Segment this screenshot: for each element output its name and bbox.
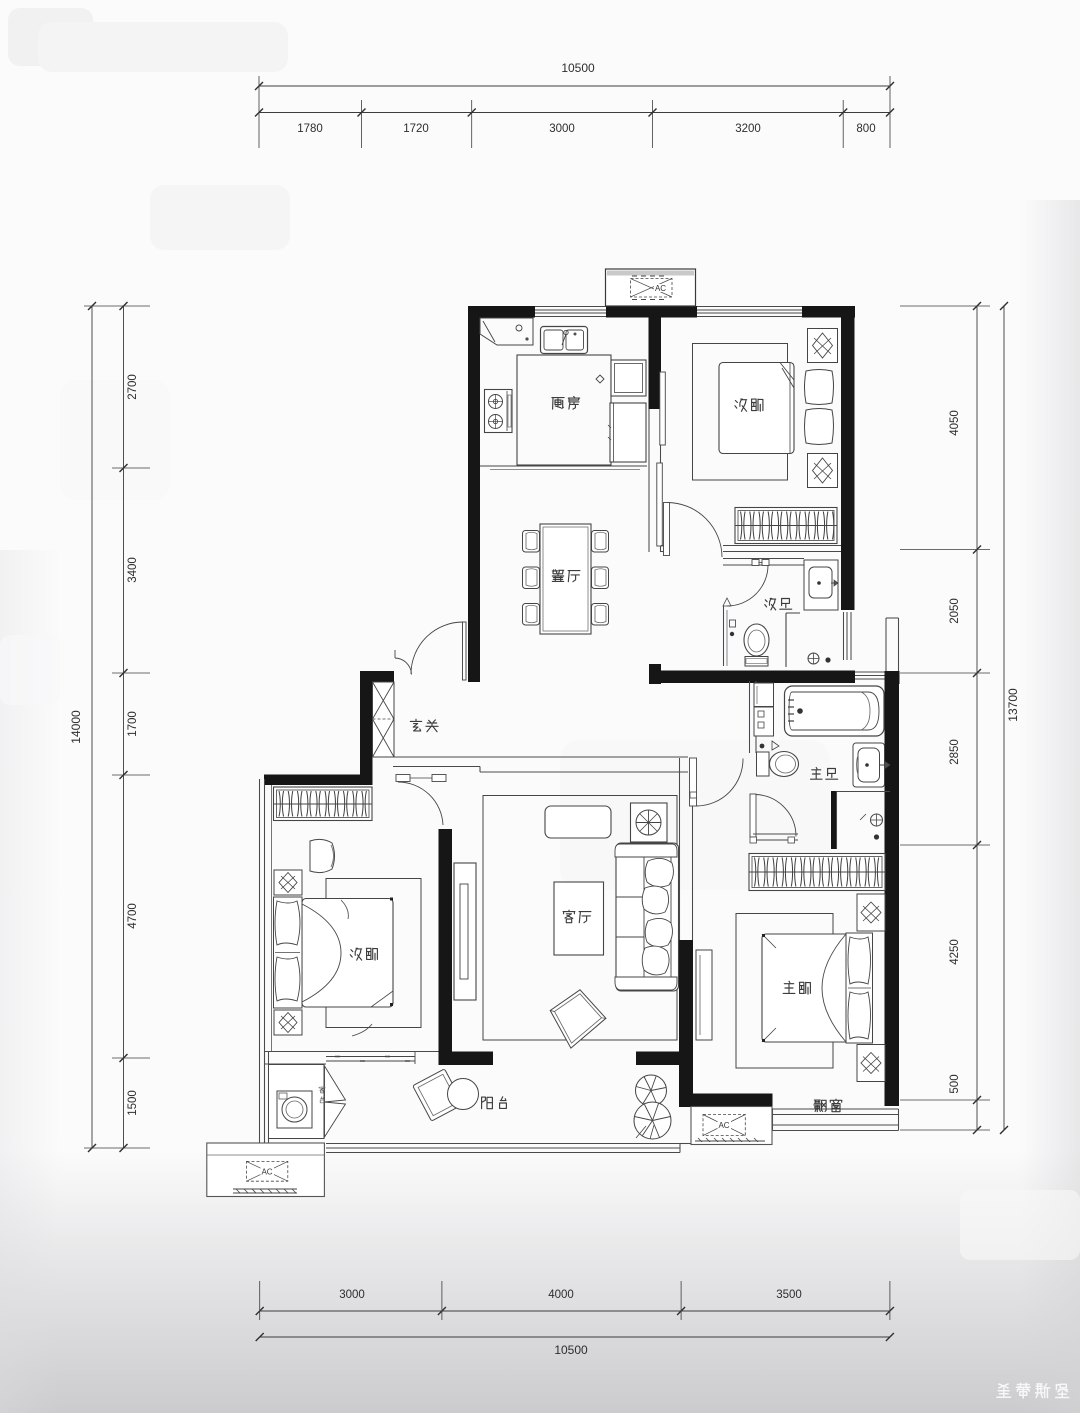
svg-text:3200: 3200 (735, 123, 761, 135)
svg-text:1720: 1720 (403, 123, 429, 135)
svg-text:3500: 3500 (776, 1289, 802, 1301)
svg-text:AC: AC (718, 1121, 729, 1130)
svg-text:14000: 14000 (69, 710, 83, 744)
svg-text:4250: 4250 (949, 939, 961, 965)
svg-text:2050: 2050 (949, 598, 961, 624)
svg-text:1780: 1780 (297, 123, 323, 135)
svg-text:4050: 4050 (949, 410, 961, 436)
svg-text:AC: AC (655, 284, 666, 293)
svg-text:3400: 3400 (127, 557, 139, 583)
svg-text:1500: 1500 (127, 1090, 139, 1116)
svg-text:500: 500 (949, 1074, 961, 1093)
svg-text:10500: 10500 (561, 61, 595, 75)
svg-text:2700: 2700 (127, 374, 139, 400)
svg-text:13700: 13700 (1006, 688, 1020, 722)
svg-text:4700: 4700 (127, 903, 139, 929)
svg-text:3000: 3000 (339, 1289, 365, 1301)
svg-text:4000: 4000 (548, 1289, 574, 1301)
svg-text:3000: 3000 (549, 123, 575, 135)
svg-text:AC: AC (261, 1168, 272, 1177)
svg-text:2850: 2850 (949, 739, 961, 765)
svg-text:800: 800 (856, 123, 875, 135)
svg-text:1700: 1700 (127, 711, 139, 737)
svg-text:10500: 10500 (554, 1343, 588, 1357)
